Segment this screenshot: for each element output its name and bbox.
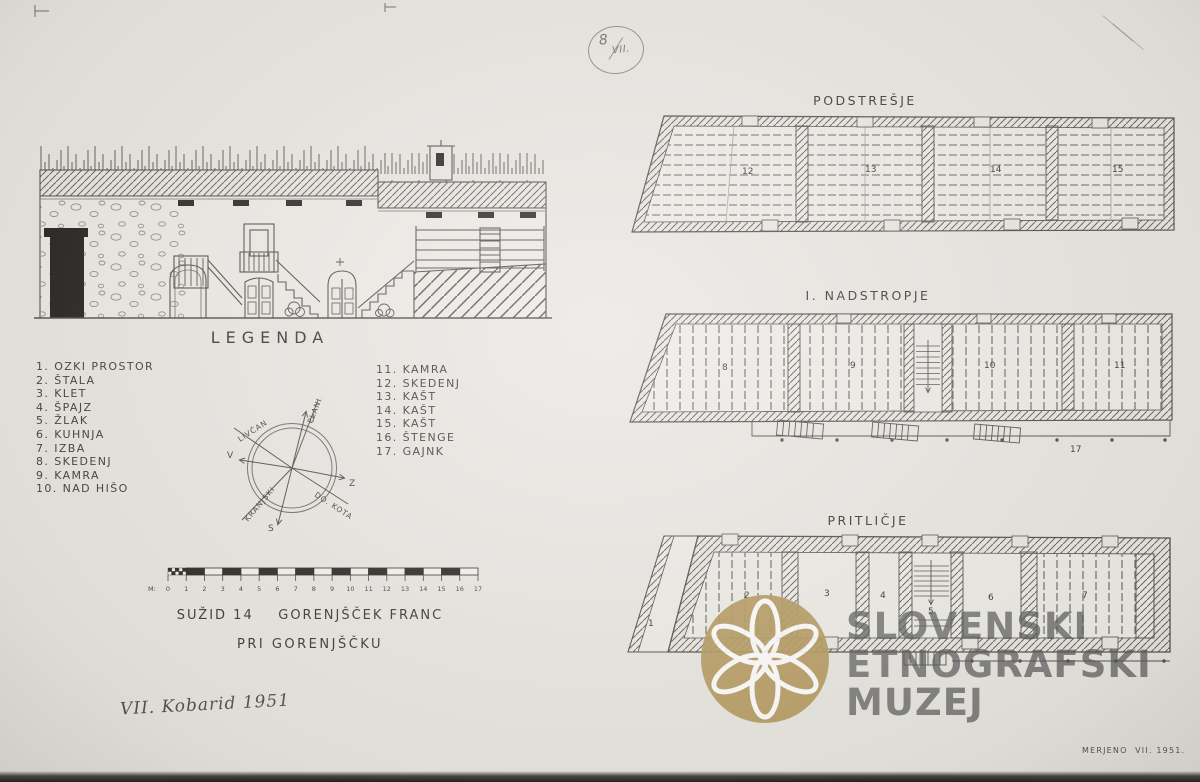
plan-label-nadstropje: I. NADSTROPJE (758, 288, 978, 303)
legend-item: 11. KAMRA (376, 363, 460, 377)
legend-item: 3. KLET (36, 387, 154, 401)
plan-label-pritlicje: PRITLIČJE (768, 513, 968, 528)
room-number: 17 (1070, 445, 1081, 455)
legend-item: 12. SKEDENJ (376, 377, 460, 391)
legend-item: 17. GAJNK (376, 445, 460, 459)
room-number: 15 (1112, 165, 1123, 175)
house-elevation-drawing (28, 140, 558, 327)
scanned-architectural-sheet: 8 VII. (0, 0, 1200, 782)
legend-item: 10. NAD HIŠO (36, 482, 154, 496)
legend-item: 2. ŠTALA (36, 374, 154, 388)
archive-stamp: 8 VII. (586, 23, 647, 77)
floor-plan-podstresje: 12 13 14 15 (622, 110, 1187, 240)
legend-title: LEGENDA (200, 328, 340, 347)
legend-item: 13. KAŠT (376, 390, 460, 404)
room-number: 10 (984, 361, 996, 371)
scale-tick-label: 9 (330, 585, 334, 593)
scale-tick-label: 2 (202, 585, 206, 593)
scale-tick-label: 0 (166, 585, 170, 593)
legend-item: 16. ŠTENGE (376, 431, 460, 445)
handwritten-place-date: VII. Kobarid 1951 (120, 691, 291, 720)
compass-cardinal-east: V (227, 451, 234, 461)
museum-wordmark-line: MUZEJ (846, 684, 1152, 722)
room-number: 12 (742, 167, 753, 177)
room-number: 1 (648, 619, 654, 629)
room-number: 8 (722, 363, 728, 373)
legend-item: 8. SKEDENJ (36, 455, 154, 469)
scale-tick-label: 6 (275, 585, 279, 593)
sheet-title-line1: SUŽID 14 GORENJŠČEK FRANC (160, 608, 460, 623)
registration-mark (33, 4, 53, 20)
scale-tick-label: 12 (383, 585, 391, 593)
scale-bar-svg: 01234567891011121314151617M: (146, 563, 486, 597)
legend-item: 4. ŠPAJZ (36, 401, 154, 415)
legend-item: 9. KAMRA (36, 469, 154, 483)
scale-tick-label: 11 (364, 585, 372, 593)
stamp-roman: VII. (611, 44, 630, 57)
room-number: 13 (865, 165, 876, 175)
legend-item: 1. OZKI PROSTOR (36, 360, 154, 374)
paper-edge-shadow (0, 771, 1200, 782)
scale-tick-label: 4 (239, 585, 243, 593)
scale-unit-label: M: (148, 585, 156, 593)
registration-mark (383, 2, 399, 14)
compass-bearing-planik: PLANIK (306, 398, 327, 425)
museum-wordmark: SLOVENSKI ETNOGRAFSKI MUZEJ (846, 608, 1152, 722)
scale-tick-label: 10 (346, 585, 354, 593)
stamp-number: 8 (598, 32, 609, 49)
legend-item: 6. KUHNJA (36, 428, 154, 442)
legend-item: 15. KAŠT (376, 417, 460, 431)
museum-watermark: SLOVENSKI ETNOGRAFSKI MUZEJ (698, 592, 1188, 762)
plan-label-podstresje: PODSTREŠJE (760, 93, 970, 108)
scale-tick-label: 7 (294, 585, 298, 593)
scale-tick-label: 14 (419, 585, 427, 593)
museum-wordmark-line: ETNOGRAFSKI (846, 646, 1152, 684)
scale-tick-label: 8 (312, 585, 316, 593)
compass-cardinal-west: Z (349, 479, 355, 489)
scale-tick-label: 16 (456, 585, 464, 593)
compass-bearing-kranjski: KRANJSKI (243, 485, 277, 523)
measured-note: MERJENO VII. 1951. (1082, 746, 1185, 755)
floor-plan-nadstropje: 8 9 10 11 17 (622, 306, 1187, 461)
room-number: 14 (990, 165, 1002, 175)
scale-tick-label: 1 (184, 585, 188, 593)
legend-column-left: 1. OZKI PROSTOR2. ŠTALA3. KLET4. ŠPAJZ5.… (36, 360, 154, 496)
legend-item: 7. IZBA (36, 442, 154, 456)
compass-cardinal-north: S (268, 524, 274, 533)
compass-rose: J S V Z PLANIK LIVČAN KRANJSKI DO. KOTA (226, 398, 361, 533)
scale-tick-label: 13 (401, 585, 409, 593)
legend-item: 14. KAŠT (376, 404, 460, 418)
scale-tick-label: 15 (437, 585, 445, 593)
scale-tick-label: 5 (257, 585, 261, 593)
room-number: 11 (1114, 361, 1125, 371)
scale-tick-label: 17 (474, 585, 482, 593)
museum-logo-flower-icon (700, 594, 830, 724)
museum-wordmark-line: SLOVENSKI (846, 608, 1152, 646)
legend-column-right: 11. KAMRA12. SKEDENJ13. KAŠT14. KAŠT15. … (376, 363, 460, 458)
room-number: 9 (850, 361, 856, 371)
paper-crease (1112, 23, 1143, 49)
scale-tick-label: 3 (221, 585, 225, 593)
legend-item: 5. ŽLAK (36, 414, 154, 428)
sheet-title-line2: PRI GORENJŠČKU (160, 637, 460, 652)
